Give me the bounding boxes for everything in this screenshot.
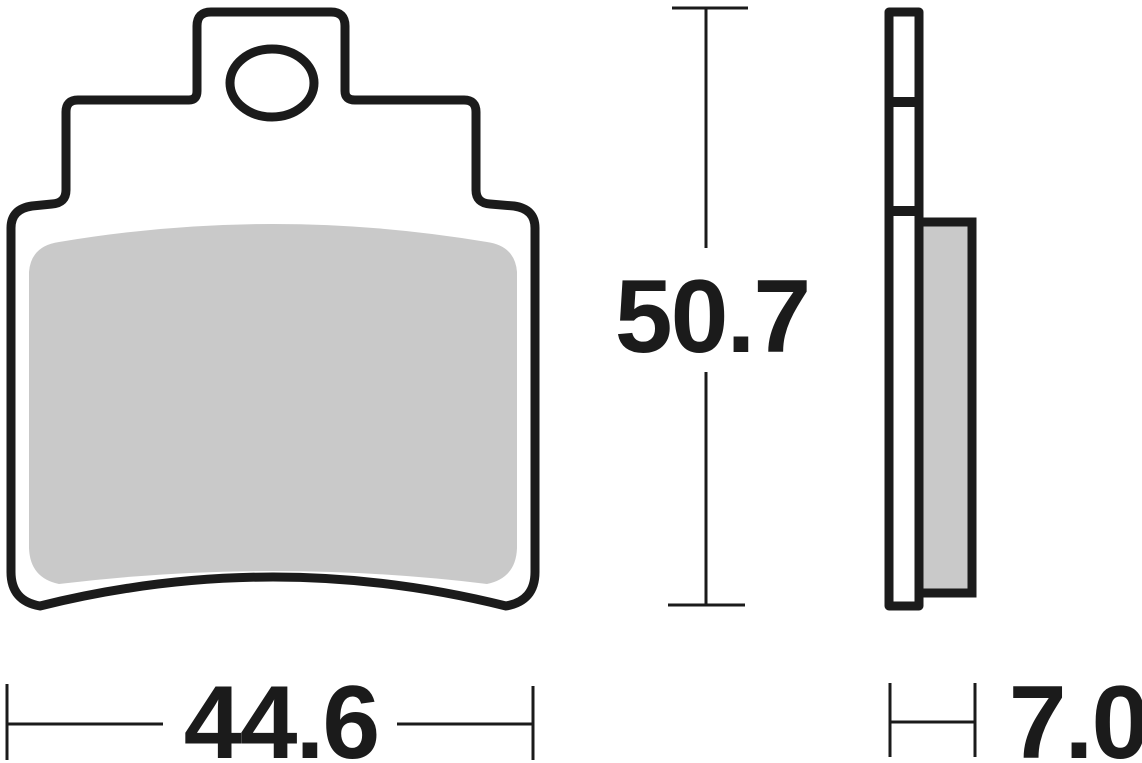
front-view (11, 12, 535, 606)
side-view (885, 12, 972, 606)
height-dim-label: 50.7 (615, 259, 809, 375)
mounting-hole (230, 49, 314, 117)
width-dimension: 44.6 (7, 665, 533, 763)
drawing-canvas: 50.7 44.6 7.0 (0, 0, 1142, 763)
thickness-dimension: 7.0 (890, 665, 1142, 763)
width-dim-label: 44.6 (184, 665, 378, 763)
side-friction-material (919, 222, 972, 593)
height-dimension: 50.7 (615, 8, 809, 605)
brake-pad-technical-drawing: 50.7 44.6 7.0 (0, 0, 1142, 763)
front-friction-material (29, 224, 517, 584)
thickness-dim-label: 7.0 (1009, 665, 1142, 763)
